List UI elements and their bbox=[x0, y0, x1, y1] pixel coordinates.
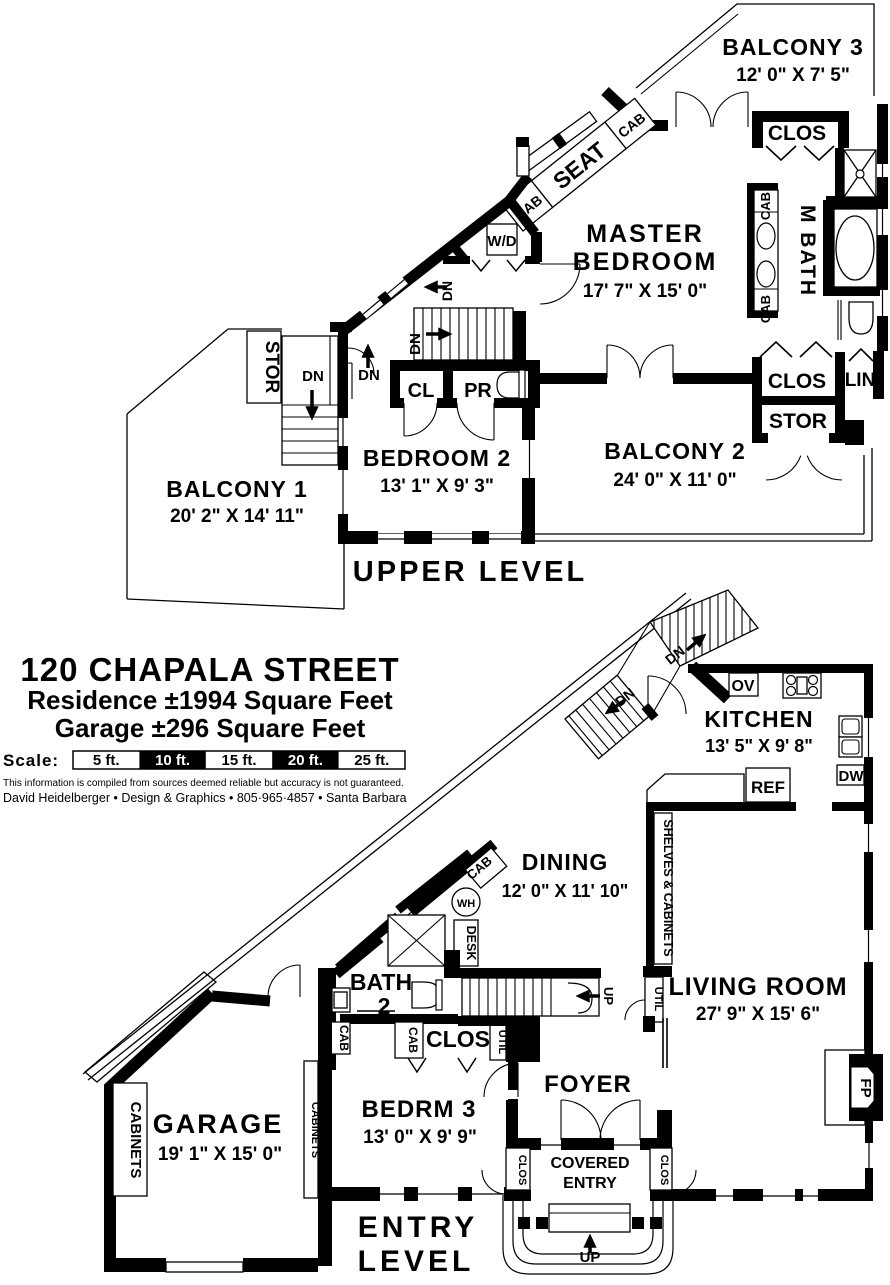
svg-text:OV: OV bbox=[731, 678, 754, 695]
svg-text:David Heidelberger • Design &: David Heidelberger • Design & Graphics •… bbox=[3, 791, 407, 805]
svg-text:COVERED: COVERED bbox=[550, 1155, 629, 1172]
svg-text:BEDRM 3: BEDRM 3 bbox=[361, 1096, 476, 1123]
svg-text:CAB: CAB bbox=[758, 295, 773, 323]
svg-text:20 ft.: 20 ft. bbox=[288, 752, 323, 769]
svg-text:CAB: CAB bbox=[337, 1025, 351, 1051]
svg-text:CLOS: CLOS bbox=[516, 1155, 528, 1186]
svg-text:Residence ±1994 Square Feet: Residence ±1994 Square Feet bbox=[27, 685, 393, 715]
svg-text:LIN: LIN bbox=[845, 370, 876, 391]
svg-text:ENTRY: ENTRY bbox=[358, 1211, 479, 1244]
svg-text:120 CHAPALA STREET: 120 CHAPALA STREET bbox=[20, 651, 399, 688]
svg-text:BEDROOM 2: BEDROOM 2 bbox=[363, 445, 511, 471]
svg-text:BEDROOM: BEDROOM bbox=[573, 248, 718, 276]
svg-text:WH: WH bbox=[457, 898, 475, 910]
svg-text:12' 0" X 11' 10": 12' 0" X 11' 10" bbox=[502, 881, 629, 901]
svg-text:DN: DN bbox=[302, 368, 324, 385]
svg-text:DW: DW bbox=[839, 768, 865, 785]
svg-text:CLOS: CLOS bbox=[658, 1155, 670, 1186]
svg-text:10 ft.: 10 ft. bbox=[155, 752, 190, 769]
svg-text:17' 7" X 15' 0": 17' 7" X 15' 0" bbox=[583, 281, 707, 302]
svg-text:CLOS: CLOS bbox=[768, 122, 826, 145]
svg-text:GARAGE: GARAGE bbox=[153, 1109, 284, 1139]
svg-text:SHELVES & CABINETS: SHELVES & CABINETS bbox=[661, 819, 675, 956]
svg-text:CABINETS: CABINETS bbox=[309, 1102, 321, 1158]
svg-text:DESK: DESK bbox=[464, 926, 478, 961]
svg-text:Scale:: Scale: bbox=[3, 751, 59, 770]
svg-text:5 ft.: 5 ft. bbox=[93, 752, 120, 769]
svg-text:This information is compiled f: This information is compiled from source… bbox=[3, 778, 404, 789]
svg-text:CAB: CAB bbox=[406, 1027, 420, 1053]
svg-text:12' 0" X 7' 5": 12' 0" X 7' 5" bbox=[736, 65, 850, 86]
svg-text:W/D: W/D bbox=[487, 233, 516, 250]
svg-text:CLOS: CLOS bbox=[768, 370, 826, 393]
svg-text:UPPER LEVEL: UPPER LEVEL bbox=[353, 556, 587, 588]
svg-text:13' 5" X 9' 8": 13' 5" X 9' 8" bbox=[705, 736, 813, 756]
svg-text:UTIL: UTIL bbox=[652, 987, 664, 1012]
svg-text:BATH: BATH bbox=[350, 969, 412, 995]
svg-text:REF: REF bbox=[751, 778, 785, 797]
svg-text:DN: DN bbox=[407, 333, 424, 355]
svg-text:MASTER: MASTER bbox=[586, 220, 704, 248]
svg-text:CABINETS: CABINETS bbox=[127, 1102, 144, 1179]
svg-text:CL: CL bbox=[408, 380, 435, 402]
svg-text:13' 0" X 9' 9": 13' 0" X 9' 9" bbox=[363, 1127, 477, 1148]
svg-text:LEVEL: LEVEL bbox=[358, 1245, 475, 1278]
svg-text:UP: UP bbox=[601, 987, 616, 1005]
svg-text:27' 9" X 15' 6": 27' 9" X 15' 6" bbox=[696, 1004, 820, 1025]
svg-text:24' 0" X 11' 0": 24' 0" X 11' 0" bbox=[613, 470, 736, 491]
svg-text:PR: PR bbox=[464, 380, 492, 402]
svg-text:CLOS: CLOS bbox=[426, 1026, 490, 1052]
svg-text:KITCHEN: KITCHEN bbox=[704, 706, 813, 732]
svg-text:BALCONY 1: BALCONY 1 bbox=[166, 476, 308, 502]
svg-text:15 ft.: 15 ft. bbox=[221, 752, 256, 769]
svg-text:19' 1" X 15' 0": 19' 1" X 15' 0" bbox=[158, 1144, 282, 1165]
svg-text:BALCONY 2: BALCONY 2 bbox=[604, 438, 746, 464]
svg-text:25 ft.: 25 ft. bbox=[354, 752, 389, 769]
svg-text:LIVING ROOM: LIVING ROOM bbox=[668, 973, 847, 1001]
svg-text:DINING: DINING bbox=[522, 849, 609, 875]
svg-text:DN: DN bbox=[439, 281, 455, 301]
svg-text:BALCONY 3: BALCONY 3 bbox=[722, 34, 864, 60]
svg-text:DN: DN bbox=[358, 367, 380, 384]
svg-text:STOR: STOR bbox=[769, 410, 827, 433]
svg-text:CAB: CAB bbox=[758, 192, 773, 220]
svg-text:M BATH: M BATH bbox=[796, 205, 819, 297]
svg-text:ENTRY: ENTRY bbox=[563, 1175, 617, 1192]
svg-text:FOYER: FOYER bbox=[544, 1071, 632, 1098]
svg-text:STOR: STOR bbox=[261, 341, 282, 394]
svg-text:FP: FP bbox=[857, 1078, 874, 1097]
svg-text:20' 2" X 14' 11": 20' 2" X 14' 11" bbox=[170, 506, 304, 527]
svg-text:13' 1" X 9' 3": 13' 1" X 9' 3" bbox=[380, 476, 494, 497]
svg-text:Garage ±296 Square Feet: Garage ±296 Square Feet bbox=[55, 713, 366, 743]
